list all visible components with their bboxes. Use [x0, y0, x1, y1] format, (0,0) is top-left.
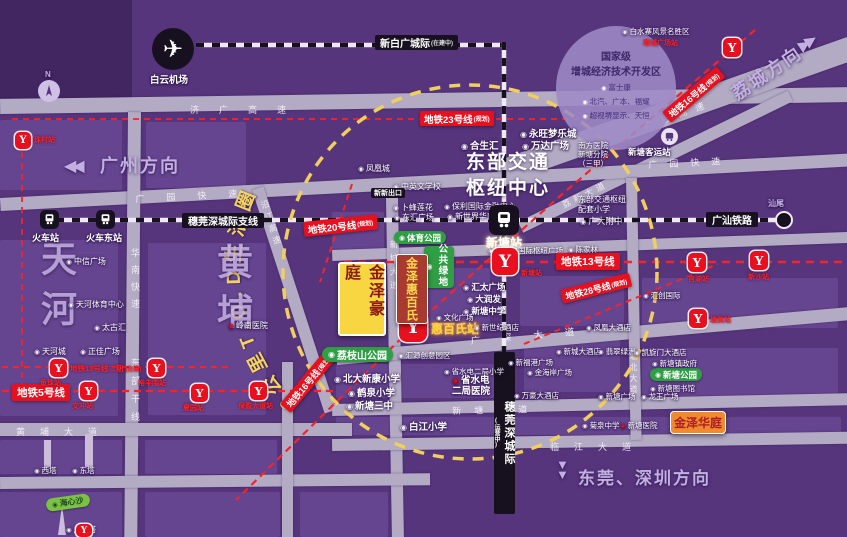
metro-station-icon: Y: [250, 382, 267, 400]
poi-xintang-guangchang: 新塘广场: [598, 391, 636, 402]
poi-longwang: 龙王广场: [641, 391, 679, 402]
zone-item: 北汽、广本、福耀: [556, 96, 676, 107]
metro-station-icon: Y: [50, 359, 67, 377]
poi-donghui: 东汇广场: [394, 212, 434, 223]
rail-xinbaiguang-status: (在建中): [431, 38, 453, 47]
map-block: [145, 440, 277, 474]
park-tiyu: 体育公园: [394, 231, 446, 244]
map-block: [0, 440, 122, 474]
poi-juquan-school: 菊泉中学: [582, 420, 620, 431]
guangzhou-direction-arrows: ◀◀: [64, 156, 81, 176]
east-tower-silhouette: [85, 434, 93, 467]
park-lizhishan: 荔枝山公园: [322, 347, 393, 362]
map-block: [300, 492, 388, 537]
railway-station-icon: [96, 210, 115, 229]
metro-station-icon: Y: [689, 309, 707, 328]
poi-xintang-hospital: 新塘医院: [620, 420, 658, 431]
compass-n-label: N: [45, 70, 51, 79]
metro-station-icon: Y: [15, 132, 31, 149]
poi-wanda: 万达广场: [522, 138, 569, 152]
poi-chenjialin: 陈家林: [568, 244, 598, 255]
poi-fenghuangcheng: 凤凰城: [358, 163, 390, 174]
poi-guangda: 广大附中: [580, 215, 622, 227]
road-bottom-left-vertical: [282, 362, 293, 537]
hub-title: 东部交通枢纽中心: [460, 150, 556, 201]
west-tower-silhouette: [44, 440, 51, 467]
shanwei-label: 汕尾: [768, 198, 784, 209]
road-label-guangyuan-west: 广园快速: [135, 186, 260, 205]
dongguan-direction-arrows: ▼▼: [556, 460, 570, 480]
zone-title-level: 国家级: [556, 48, 676, 63]
station-xiayuan: 夏园站: [183, 403, 204, 413]
poi-zhengfu: 新塘镇政府: [652, 358, 697, 369]
poi-wenhua: 文化广场: [436, 312, 474, 323]
compass-icon: [38, 80, 60, 102]
road-label-huanan: 华南快速: [129, 248, 142, 316]
poi-jinhaian: 金海岸广场: [527, 367, 572, 378]
station-zengchengguangchang: 增城广场站: [643, 38, 678, 48]
poi-xita: 西塔: [34, 465, 57, 476]
park-lvdi: 公共绿地: [424, 246, 454, 288]
park-xintang: 新塘公园: [650, 368, 702, 381]
railway-station-icon: [40, 210, 59, 229]
project-jinze-haoting: 金泽豪庭: [338, 262, 386, 336]
poi-beida-school: 北大新康小学: [334, 371, 400, 385]
rail-suiwanshen-text: 穗莞深城际: [501, 401, 517, 466]
road-bottom-left: [0, 473, 430, 489]
rail-guangshan-label: 广汕铁路: [706, 212, 758, 227]
keyunzhan-label: 新塘客运站: [628, 146, 671, 158]
huochezhan-label: 火车站: [32, 231, 59, 244]
poi-xincheng-hotel: 新城大酒店: [556, 346, 601, 357]
metro-line-13b-text: 地铁13号线二期: [70, 364, 123, 373]
road-label-huangpu: 黄埔大道: [16, 425, 112, 438]
poi-santhong-school: 新塘三中: [346, 398, 393, 412]
road-label-linjiang: 临江大道: [550, 440, 646, 453]
road-label-tangbei: 塘北大道: [628, 352, 639, 396]
dongguan-shenzhen-direction-label: 东莞、深圳方向: [578, 464, 711, 489]
station-baoying: 保盈大道站: [238, 401, 273, 411]
map-block: [145, 492, 280, 537]
poi-huichuang: 汇创国际: [643, 290, 681, 301]
metro-station-icon: Y: [76, 524, 92, 537]
poi-xinxin-exit: 新新出口: [371, 188, 405, 198]
metro-line-13b-label: 地铁13号线二期 (在建): [70, 363, 141, 374]
zone-item: 超视堺显示、天恒: [556, 110, 676, 121]
metro-station-icon: Y: [80, 382, 97, 400]
station-wenchong: 文冲站: [72, 401, 93, 411]
poi-zhengjia: 正佳广场: [80, 346, 120, 357]
poi-tianhecheng: 天河城: [34, 346, 66, 357]
metro-line-20-status: (规划): [357, 218, 374, 229]
poi-taiguhui: 太古汇: [94, 322, 126, 333]
rail-xinbaiguang-label: 新白广城际 (在建中): [375, 35, 458, 50]
poi-tianhetiyu: 天河体育中心: [68, 299, 124, 310]
poi-huiyuan: 汇源创意园区: [398, 350, 451, 361]
station-xintang: 新塘站: [521, 268, 542, 278]
metro-line-28-status: (规划): [610, 276, 628, 289]
zone-item: 富士康: [556, 82, 676, 93]
district-tianhe: 天河: [30, 240, 82, 340]
guangzhou-direction-label: 广州方向: [100, 152, 180, 178]
metro-station-icon-xintang: Y: [492, 248, 518, 275]
metro-line-13-label: 地铁13号线: [556, 253, 620, 270]
metro-line-13b-status: (在建): [125, 367, 141, 373]
poi-kaixuanmen-hotel: 凯旋门大酒店: [634, 347, 687, 358]
metro-line-23-text: 地铁23号线: [424, 112, 473, 126]
airport-label: 白云机场: [150, 72, 188, 86]
poi-shuidian-hospital: 省水电二局医院: [452, 375, 492, 398]
map-block: [0, 0, 132, 98]
poi-baishuizhai: 白水寨风景名胜区: [622, 26, 690, 37]
project-jinze-huibaishi: 金泽惠百氏: [396, 254, 428, 324]
station-zhucun: 珠村站: [34, 135, 55, 145]
metro-station-icon: Y: [750, 251, 768, 270]
poi-nanfang-hospital: 南方医院新塘分院（三甲）: [575, 141, 611, 168]
station-guanhu: 官湖站: [688, 274, 709, 284]
poi-zhongxin: 中信广场: [66, 256, 106, 267]
bus-terminal-icon: [661, 128, 678, 145]
airport-icon: ✈: [152, 28, 194, 70]
xintang-railway-station-icon: [489, 205, 519, 235]
metro-line-23-status: (规划): [474, 114, 490, 123]
metro-station-icon: Y: [148, 359, 165, 377]
poi-wanhao-hotel: 万豪大酒店: [514, 390, 559, 401]
poi-baijiang-school: 白江小学: [400, 419, 447, 433]
rail-xinbaiguang-text: 新白广城际: [380, 35, 430, 50]
station-yufengwei: 裕丰围站: [138, 378, 166, 388]
shanwei-terminal-icon: [776, 212, 792, 228]
poi-feicui: 翡翠绿洲: [598, 346, 636, 357]
poi-peitao-school: 东部交通枢纽配套小学: [578, 195, 630, 214]
rail-suiwanshen-branch-label: 穗莞深城际支线: [182, 213, 264, 228]
poi-darunfa: 大润发: [467, 293, 501, 305]
station-xinsha: 新沙站: [748, 272, 769, 282]
poi-heshenghui: 合生汇: [461, 138, 499, 152]
station-tangmei: 塘美站: [710, 315, 731, 325]
metro-station-icon: Y: [688, 253, 706, 272]
huochedongzhan-label: 火车东站: [86, 231, 122, 244]
road-label-jiguang: 济广高速: [190, 103, 306, 116]
poi-fenghuang-hotel: 凤凰大酒店: [586, 322, 631, 333]
poi-hequan-school: 鹤泉小学: [348, 385, 395, 399]
metro-station-icon: Y: [191, 384, 208, 402]
station-yuzhu: 鱼珠站: [40, 378, 61, 388]
poi-lingnan-hospital: 岭南医院: [228, 320, 268, 331]
metro-line-23-label: 地铁23号线 (规划): [420, 111, 494, 126]
poi-dongta: 东塔: [72, 465, 95, 476]
zone-title-name: 增城经济技术开发区: [556, 63, 676, 78]
metro-station-icon: Y: [723, 38, 741, 57]
poi-xinshiji-hotel: 新世纪酒店: [474, 322, 519, 333]
project-jinze-huating: 金泽华庭: [670, 411, 726, 434]
location-map: 济广高速 广惠高速 广园快速 广园快速 华南快速 东部干线 沿江高速 新城大道 …: [0, 0, 847, 537]
poi-huitai: 汇太广场: [463, 281, 505, 293]
rail-suiwanshen-status: (运营中): [492, 418, 501, 448]
